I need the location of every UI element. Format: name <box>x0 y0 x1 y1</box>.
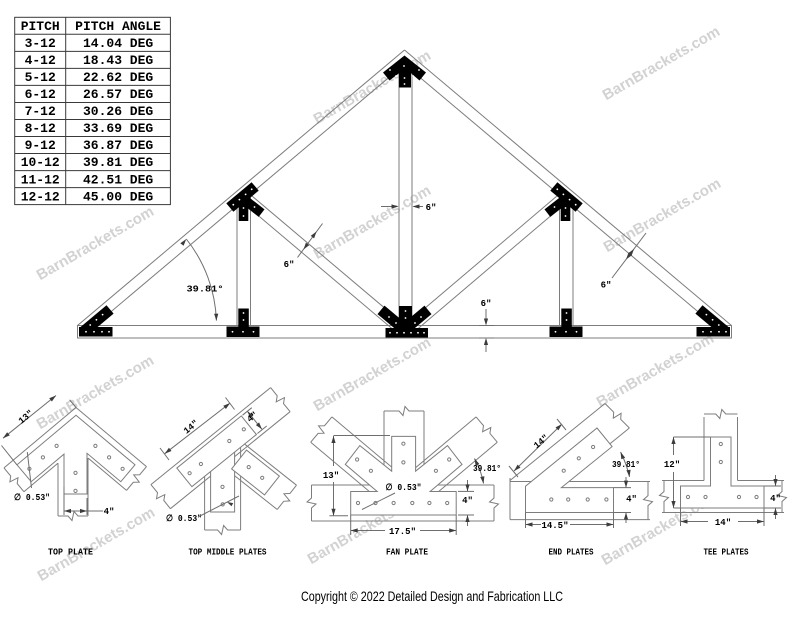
svg-text:39.81°: 39.81° <box>612 460 640 470</box>
svg-text:6″: 6″ <box>601 281 612 291</box>
svg-text:18.43 DEG: 18.43 DEG <box>83 53 153 68</box>
svg-text:5-12: 5-12 <box>25 70 56 85</box>
svg-text:42.51 DEG: 42.51 DEG <box>83 172 153 187</box>
svg-text:6″: 6″ <box>284 260 295 270</box>
svg-text:7-12: 7-12 <box>25 104 56 119</box>
svg-text:10-12: 10-12 <box>21 155 60 170</box>
svg-text:45.00 DEG: 45.00 DEG <box>83 189 153 204</box>
svg-text:∅ 0.53″: ∅ 0.53″ <box>386 483 422 493</box>
svg-text:39.81°: 39.81° <box>473 464 501 474</box>
svg-text:14.04 DEG: 14.04 DEG <box>83 36 153 51</box>
svg-text:6″: 6″ <box>426 203 437 213</box>
svg-text:FAN PLATE: FAN PLATE <box>386 548 429 558</box>
svg-text:TEE PLATES: TEE PLATES <box>704 548 749 558</box>
svg-text:6″: 6″ <box>481 299 492 309</box>
svg-text:PITCH: PITCH <box>21 19 60 34</box>
svg-text:END PLATES: END PLATES <box>549 548 594 558</box>
svg-text:14″: 14″ <box>715 518 731 528</box>
svg-text:TOP MIDDLE PLATES: TOP MIDDLE PLATES <box>189 548 267 558</box>
svg-text:39.81 DEG: 39.81 DEG <box>83 155 153 170</box>
svg-text:13″: 13″ <box>323 471 339 481</box>
svg-text:TOP PLATE: TOP PLATE <box>48 548 94 558</box>
svg-text:Copyright © 2022 Detailed Desi: Copyright © 2022 Detailed Design and Fab… <box>301 588 563 604</box>
svg-text:12-12: 12-12 <box>21 189 60 204</box>
svg-text:30.26 DEG: 30.26 DEG <box>83 104 153 119</box>
svg-text:8-12: 8-12 <box>25 121 56 136</box>
svg-text:∅ 0.53″: ∅ 0.53″ <box>14 493 50 503</box>
svg-text:3-12: 3-12 <box>25 36 56 51</box>
svg-text:4″: 4″ <box>626 495 637 505</box>
svg-text:12″: 12″ <box>664 460 680 470</box>
svg-text:4″: 4″ <box>462 496 473 506</box>
svg-text:4″: 4″ <box>770 494 781 504</box>
svg-text:∅ 0.53″: ∅ 0.53″ <box>166 514 202 524</box>
svg-text:39.81°: 39.81° <box>187 285 224 295</box>
svg-text:11-12: 11-12 <box>21 172 60 187</box>
svg-text:PITCH ANGLE: PITCH ANGLE <box>75 19 161 34</box>
svg-text:36.87 DEG: 36.87 DEG <box>83 138 153 153</box>
svg-text:6-12: 6-12 <box>25 87 56 102</box>
svg-text:14.5″: 14.5″ <box>541 521 568 531</box>
svg-text:17.5″: 17.5″ <box>389 527 416 537</box>
svg-text:4-12: 4-12 <box>25 53 56 68</box>
svg-text:4″: 4″ <box>104 507 115 517</box>
svg-text:22.62 DEG: 22.62 DEG <box>83 70 153 85</box>
svg-text:26.57 DEG: 26.57 DEG <box>83 87 153 102</box>
svg-text:9-12: 9-12 <box>25 138 56 153</box>
svg-text:33.69 DEG: 33.69 DEG <box>83 121 153 136</box>
